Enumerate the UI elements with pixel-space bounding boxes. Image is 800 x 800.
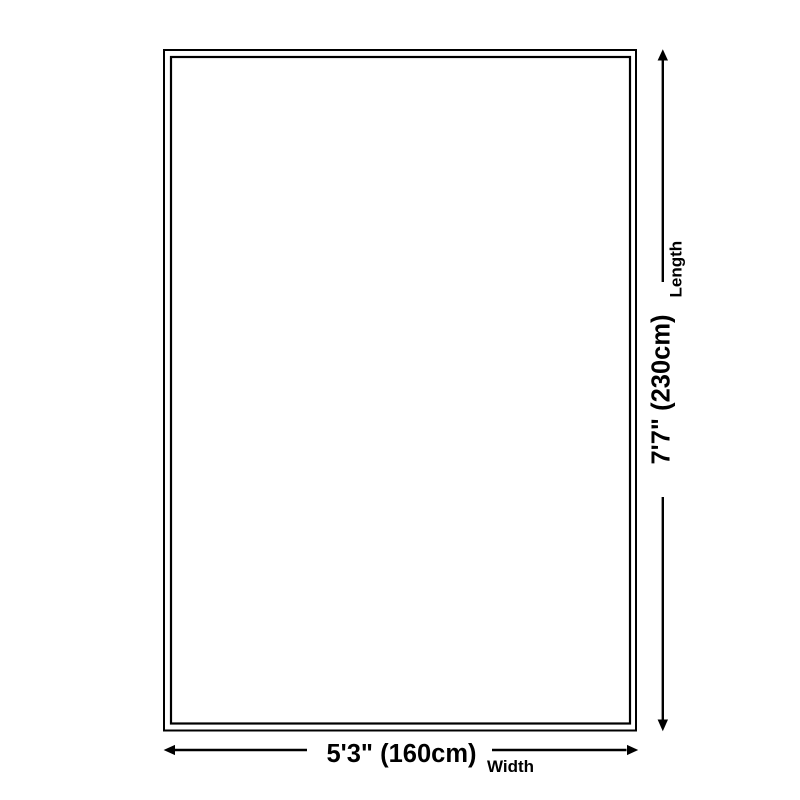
svg-text:Length: Length xyxy=(667,241,686,298)
svg-text:5'3" (160cm): 5'3" (160cm) xyxy=(327,740,477,768)
svg-text:7'7" (230cm): 7'7" (230cm) xyxy=(648,315,676,465)
svg-text:Width: Width xyxy=(487,757,534,776)
